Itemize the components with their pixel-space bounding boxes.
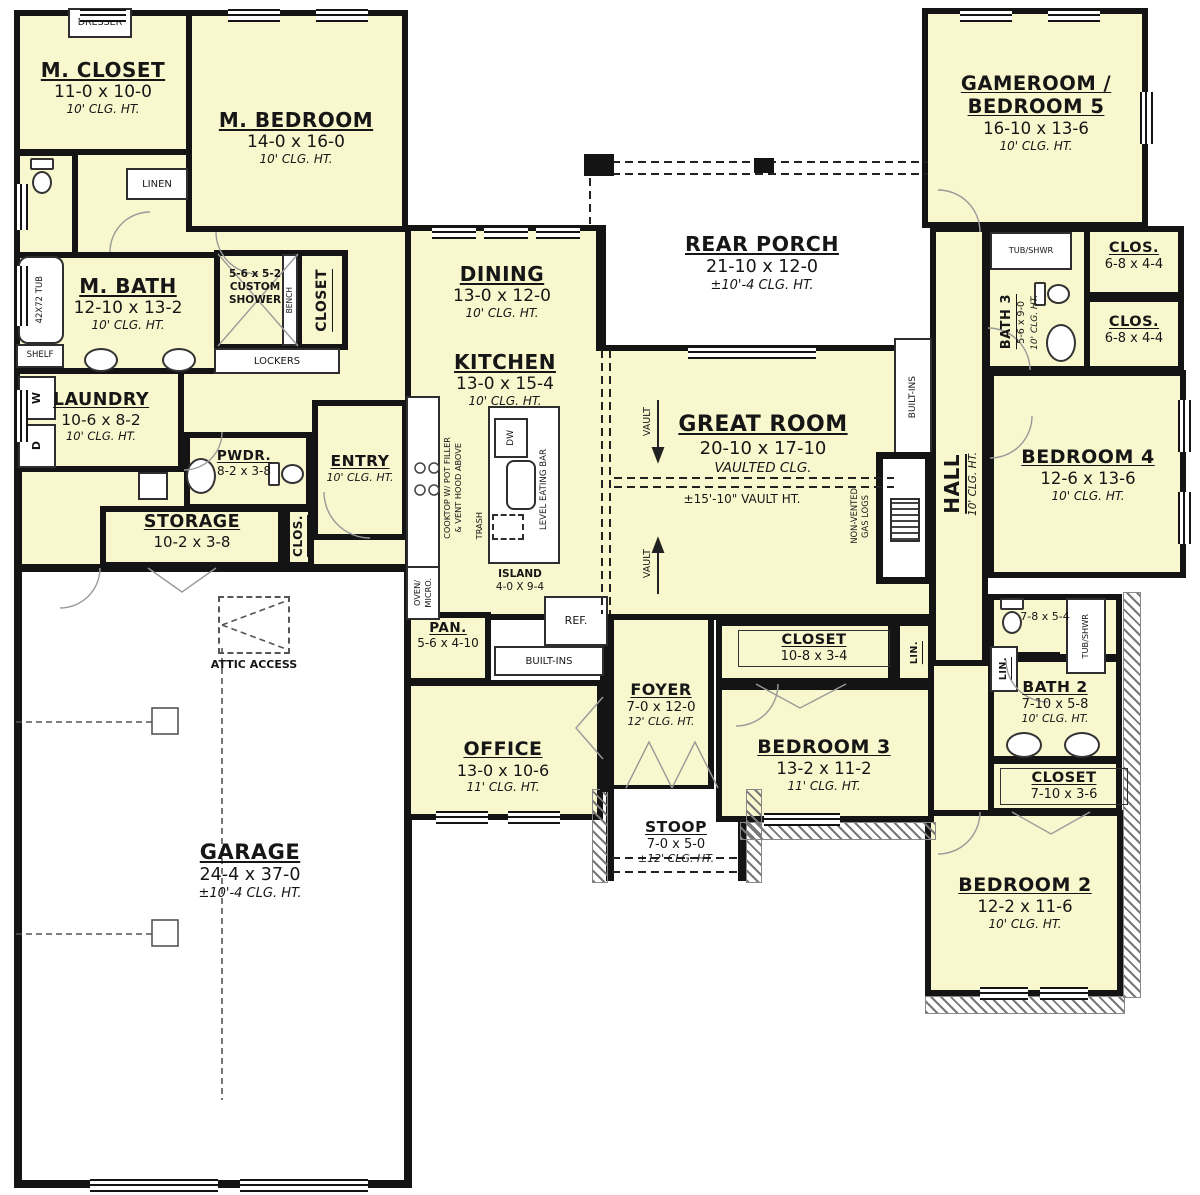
attic-access-box xyxy=(218,596,290,654)
micro-label: MICRO. xyxy=(424,578,433,608)
garage-door xyxy=(240,1179,368,1192)
oven-label: OVEN/ xyxy=(413,580,422,606)
room-name: GREAT ROOM xyxy=(678,412,847,438)
label-linen-bedroom3: LIN. xyxy=(898,630,932,676)
label-storage: STORAGE 10-2 x 3-8 xyxy=(104,512,280,551)
room-name: PWDR. xyxy=(217,448,271,464)
room-clg: 10' CLG. HT. xyxy=(988,917,1061,931)
garage-door xyxy=(90,1179,218,1192)
label-island: ISLAND 4-0 X 9-4 xyxy=(470,568,570,593)
trash-cabinet xyxy=(492,514,524,540)
room-dims: 7-10 x 3-6 xyxy=(1031,787,1098,803)
room-dims: 7-0 x 5-0 xyxy=(647,837,705,853)
room-name: DINING xyxy=(460,262,544,286)
room-name: BEDROOM 4 xyxy=(1021,446,1154,469)
trash-label: TRASH xyxy=(475,512,484,539)
room-name: FOYER xyxy=(630,680,691,699)
label-hall: HALL 10' CLG. HT. xyxy=(934,418,986,550)
dw-label: DW xyxy=(506,430,516,446)
label-attic: ATTIC ACCESS xyxy=(180,658,328,671)
room-name: CLOSET xyxy=(1032,770,1097,787)
room-dims: 13-2 x 11-2 xyxy=(776,759,871,779)
lin-b3-label: LIN. xyxy=(910,641,921,664)
label-bath2: BATH 2 7-10 x 5-8 10' CLG. HT. xyxy=(992,678,1118,725)
room-name: REAR PORCH xyxy=(685,232,839,257)
vault-height: ±15'-10" VAULT HT. xyxy=(684,492,801,506)
refrigerator: REF. xyxy=(544,596,608,646)
room-name: PAN. xyxy=(429,620,467,636)
room-dims: 16-10 x 13-6 xyxy=(983,119,1089,139)
hall-corner-floor xyxy=(932,660,988,812)
label-stoop: STOOP 7-0 x 5-0 ±12' CLG. HT. xyxy=(608,818,744,865)
label-closet2-vertical: CLOSET xyxy=(298,256,346,344)
label-master-bath: M. BATH 12-10 x 13-2 10' CLG. HT. xyxy=(36,274,220,333)
room-clg: 10' CLG. HT. xyxy=(1021,712,1088,725)
label-vault-lower: VAULT xyxy=(640,536,656,592)
label-garage: GARAGE 24-4 x 37-0 ±10'-4 CLG. HT. xyxy=(148,840,352,902)
hatch-stoop-left xyxy=(592,789,608,883)
window xyxy=(15,266,28,326)
label-closet-bedroom3: CLOSET 10-8 x 3-4 xyxy=(738,630,890,667)
room-name: BEDROOM 2 xyxy=(958,874,1091,897)
label-powder: PWDR. 8-2 x 3-8 xyxy=(196,448,292,479)
mud-sink xyxy=(138,472,168,500)
label-gas-logs: NON-VENTED GAS LOGS xyxy=(844,450,876,582)
room-clg: 10' CLG. HT. xyxy=(999,139,1072,153)
sink-icon xyxy=(1006,732,1042,758)
room-dims: 12-6 x 13-6 xyxy=(1040,469,1135,489)
label-eating-bar: LEVEL EATING BAR xyxy=(536,418,554,562)
clos-entry-label: CLOS. xyxy=(292,515,306,557)
label-master-bedroom: M. BEDROOM 14-0 x 16-0 10' CLG. HT. xyxy=(196,108,396,167)
room-name-2: BEDROOM 5 xyxy=(968,95,1105,118)
label-great-room: GREAT ROOM 20-10 x 17-10 VAULTED CLG. xyxy=(660,412,866,476)
room-name: M. CLOSET xyxy=(41,58,165,82)
gas-l2: GAS LOGS xyxy=(861,495,871,538)
window xyxy=(764,813,840,826)
room-name: GARAGE xyxy=(200,840,301,865)
label-closet3a: CLOS. 6-8 x 4-4 xyxy=(1090,240,1178,273)
bath3-dims: 5-6 x 9-0 xyxy=(1017,301,1028,344)
sink-icon xyxy=(84,348,118,372)
label-rear-porch: REAR PORCH 21-10 x 12-0 ±10'-4 CLG. HT. xyxy=(660,232,864,293)
room-name: M. BATH xyxy=(79,274,177,298)
label-pantry: PAN. 5-6 x 4-10 xyxy=(407,620,489,651)
label-dining: DINING 13-0 x 12-0 10' CLG. HT. xyxy=(420,262,584,321)
oven-micro: OVEN/ MICRO. xyxy=(406,566,440,620)
room-name: LAUNDRY xyxy=(53,390,149,411)
room-name: BEDROOM 3 xyxy=(757,736,890,759)
dishwasher: DW xyxy=(494,418,528,458)
label-office: OFFICE 13-0 x 10-6 11' CLG. HT. xyxy=(421,738,585,794)
window xyxy=(1040,987,1088,1000)
room-dims: 20-10 x 17-10 xyxy=(700,438,827,460)
tubshwr3-label: TUB/SHWR xyxy=(1009,246,1054,255)
label-bedroom4: BEDROOM 4 12-6 x 13-6 10' CLG. HT. xyxy=(993,446,1183,503)
window xyxy=(960,9,1012,22)
cooktop-l2: & VENT HOOD ABOVE xyxy=(454,443,463,533)
shower-l1: CUSTOM xyxy=(230,281,280,294)
room-name: STORAGE xyxy=(144,512,240,533)
room-name: GAMEROOM / xyxy=(961,72,1111,95)
built-ins-greatroom: BUILT-INS xyxy=(894,338,932,456)
room-name: CLOSET xyxy=(782,632,847,649)
room-dims: 13-0 x 12-0 xyxy=(453,286,551,306)
room-clg: 10' CLG. HT. xyxy=(66,430,136,444)
lockers: LOCKERS xyxy=(214,348,340,374)
label-entry: ENTRY 10' CLG. HT. xyxy=(314,452,406,484)
lockers-label: LOCKERS xyxy=(254,356,300,367)
attic-label: ATTIC ACCESS xyxy=(211,658,297,671)
window xyxy=(508,811,560,824)
room-name: KITCHEN xyxy=(454,350,556,374)
room-name: BATH 2 xyxy=(1022,678,1087,697)
label-trash: TRASH xyxy=(472,498,488,554)
wall xyxy=(596,225,606,351)
room-name: ISLAND xyxy=(498,568,542,581)
room-clg: ±10'-4 CLG. HT. xyxy=(710,278,813,294)
room-name: CLOS. xyxy=(1109,240,1159,257)
room-name: OFFICE xyxy=(463,738,542,761)
room-clg: ±12' CLG. HT. xyxy=(638,852,714,865)
window xyxy=(1140,92,1153,144)
builtins-label: BUILT-INS xyxy=(526,656,573,667)
label-closet-bedroom2: CLOSET 7-10 x 3-6 xyxy=(1000,768,1128,805)
label-foyer: FOYER 7-0 x 12-0 12' CLG. HT. xyxy=(610,680,712,729)
window xyxy=(688,346,816,359)
wall xyxy=(14,468,22,572)
gas-l1: NON-VENTED xyxy=(850,488,860,544)
builtins-gr-label: BUILT-INS xyxy=(908,376,918,418)
label-bedroom3: BEDROOM 3 13-2 x 11-2 11' CLG. HT. xyxy=(726,736,922,793)
label-vault-height: ±15'-10" VAULT HT. xyxy=(652,492,832,506)
label-bath2-wc: 7-8 x 5-4 xyxy=(1016,610,1074,623)
bath3-name: BATH 3 xyxy=(1000,294,1015,349)
fireplace-logs xyxy=(890,498,920,542)
room-dims: 12-10 x 13-2 xyxy=(74,298,183,318)
room-name: M. BEDROOM xyxy=(219,108,373,132)
label-closet3b: CLOS. 6-8 x 4-4 xyxy=(1090,314,1178,347)
room-clg: 10' CLG. HT. xyxy=(468,394,541,408)
room-dims: 4-0 X 9-4 xyxy=(496,581,544,594)
room-clg: 10' CLG. HT. xyxy=(66,102,139,116)
room-clg: 10' CLG. HT. xyxy=(1051,489,1124,503)
bath3-clg: 10' CLG. HT. xyxy=(1030,295,1040,350)
room-dims: 7-10 x 5-8 xyxy=(1022,697,1089,713)
window xyxy=(1178,400,1191,452)
room-dims: 10-6 x 8-2 xyxy=(61,411,141,430)
sink-icon xyxy=(162,348,196,372)
room-dims: 5-6 x 4-10 xyxy=(417,636,479,650)
label-entry-closet: CLOS. xyxy=(286,508,312,564)
tub-shower-bath3: TUB/SHWR xyxy=(990,232,1072,270)
room-dims: 8-2 x 3-8 xyxy=(217,464,271,478)
room-clg: ±10'-4 CLG. HT. xyxy=(198,886,301,902)
room-dims: 14-0 x 16-0 xyxy=(247,132,345,152)
vault-label: VAULT xyxy=(643,549,654,578)
shower-l2: SHOWER xyxy=(229,294,281,307)
room-name: STOOP xyxy=(645,818,707,837)
sink-icon xyxy=(1064,732,1100,758)
hall-clg: 10' CLG. HT. xyxy=(967,452,979,516)
room-clg: 10' CLG. HT. xyxy=(259,152,332,166)
shelf-label: SHELF xyxy=(27,351,54,360)
ref-label: REF. xyxy=(565,615,588,627)
room-clg: 11' CLG. HT. xyxy=(787,779,860,793)
room-clg: 12' CLG. HT. xyxy=(627,715,694,728)
tubshwr2-label: TUB/SHWR xyxy=(1081,614,1090,659)
room-dims: 13-0 x 15-4 xyxy=(456,374,554,394)
label-gameroom: GAMEROOM / BEDROOM 5 16-10 x 13-6 10' CL… xyxy=(936,72,1136,153)
room-clg: VAULTED CLG. xyxy=(714,460,811,476)
linen-cabinet: LINEN xyxy=(126,168,188,200)
room-name: CLOS. xyxy=(1109,314,1159,331)
closet2-label: CLOSET xyxy=(314,269,330,332)
room-clg: 11' CLG. HT. xyxy=(466,780,539,794)
sink-icon xyxy=(1046,324,1076,362)
room-dims: 7-8 x 5-4 xyxy=(1020,610,1069,623)
room-dims: 13-0 x 10-6 xyxy=(457,761,549,780)
shelf: SHELF xyxy=(16,344,64,368)
room-dims: 7-0 x 12-0 xyxy=(626,699,695,715)
cooktop-l1: COOKTOP W/ POT FILLER xyxy=(443,437,452,539)
room-dims: 10-8 x 3-4 xyxy=(781,649,848,665)
window xyxy=(536,226,580,239)
room-clg: 10' CLG. HT. xyxy=(465,306,538,320)
room-clg: 10' CLG. HT. xyxy=(91,318,164,332)
room-dims: 6-8 x 4-4 xyxy=(1105,257,1163,273)
island-sink xyxy=(506,460,536,510)
window xyxy=(80,9,126,22)
vault-label: VAULT xyxy=(643,407,654,436)
room-dims: 12-2 x 11-6 xyxy=(977,897,1072,917)
window xyxy=(228,9,280,22)
room-dims: 11-0 x 10-0 xyxy=(54,82,152,102)
window xyxy=(316,9,368,22)
toilet-icon xyxy=(30,158,54,194)
hall-name: HALL xyxy=(941,454,964,514)
window xyxy=(484,226,528,239)
room-dims: 10-2 x 3-8 xyxy=(154,533,231,551)
label-bedroom2: BEDROOM 2 12-2 x 11-6 10' CLG. HT. xyxy=(930,874,1120,931)
label-custom-shower: 5-6 x 5-2 CUSTOM SHOWER xyxy=(212,268,298,307)
window xyxy=(436,811,488,824)
linen-label: LINEN xyxy=(142,179,172,190)
label-laundry: LAUNDRY 10-6 x 8-2 10' CLG. HT. xyxy=(22,390,180,443)
label-master-closet: M. CLOSET 11-0 x 10-0 10' CLG. HT. xyxy=(20,58,186,117)
label-kitchen: KITCHEN 13-0 x 15-4 10' CLG. HT. xyxy=(423,350,587,409)
window xyxy=(1048,9,1100,22)
window xyxy=(15,184,28,230)
label-cooktop: COOKTOP W/ POT FILLER & VENT HOOD ABOVE xyxy=(438,404,468,572)
room-name: ENTRY xyxy=(331,452,390,471)
room-dims: 21-10 x 12-0 xyxy=(706,257,818,278)
room-dims: 24-4 x 37-0 xyxy=(200,865,301,886)
eating-bar-label: LEVEL EATING BAR xyxy=(540,449,550,530)
room-clg: 10' CLG. HT. xyxy=(326,471,393,484)
floor-plan: DRESSER LINEN 42X72 TUB SHELF LOCKERS BE… xyxy=(0,0,1200,1195)
label-vault-upper: VAULT xyxy=(640,394,656,450)
label-bath3: BATH 3 5-6 x 9-0 10' CLG. HT. xyxy=(992,274,1048,370)
shower-dims: 5-6 x 5-2 xyxy=(229,268,281,281)
built-ins-kitchen: BUILT-INS xyxy=(494,646,604,676)
kitchen-counter xyxy=(406,396,440,576)
window xyxy=(980,987,1028,1000)
window xyxy=(432,226,476,239)
room-dims: 6-8 x 4-4 xyxy=(1105,331,1163,347)
